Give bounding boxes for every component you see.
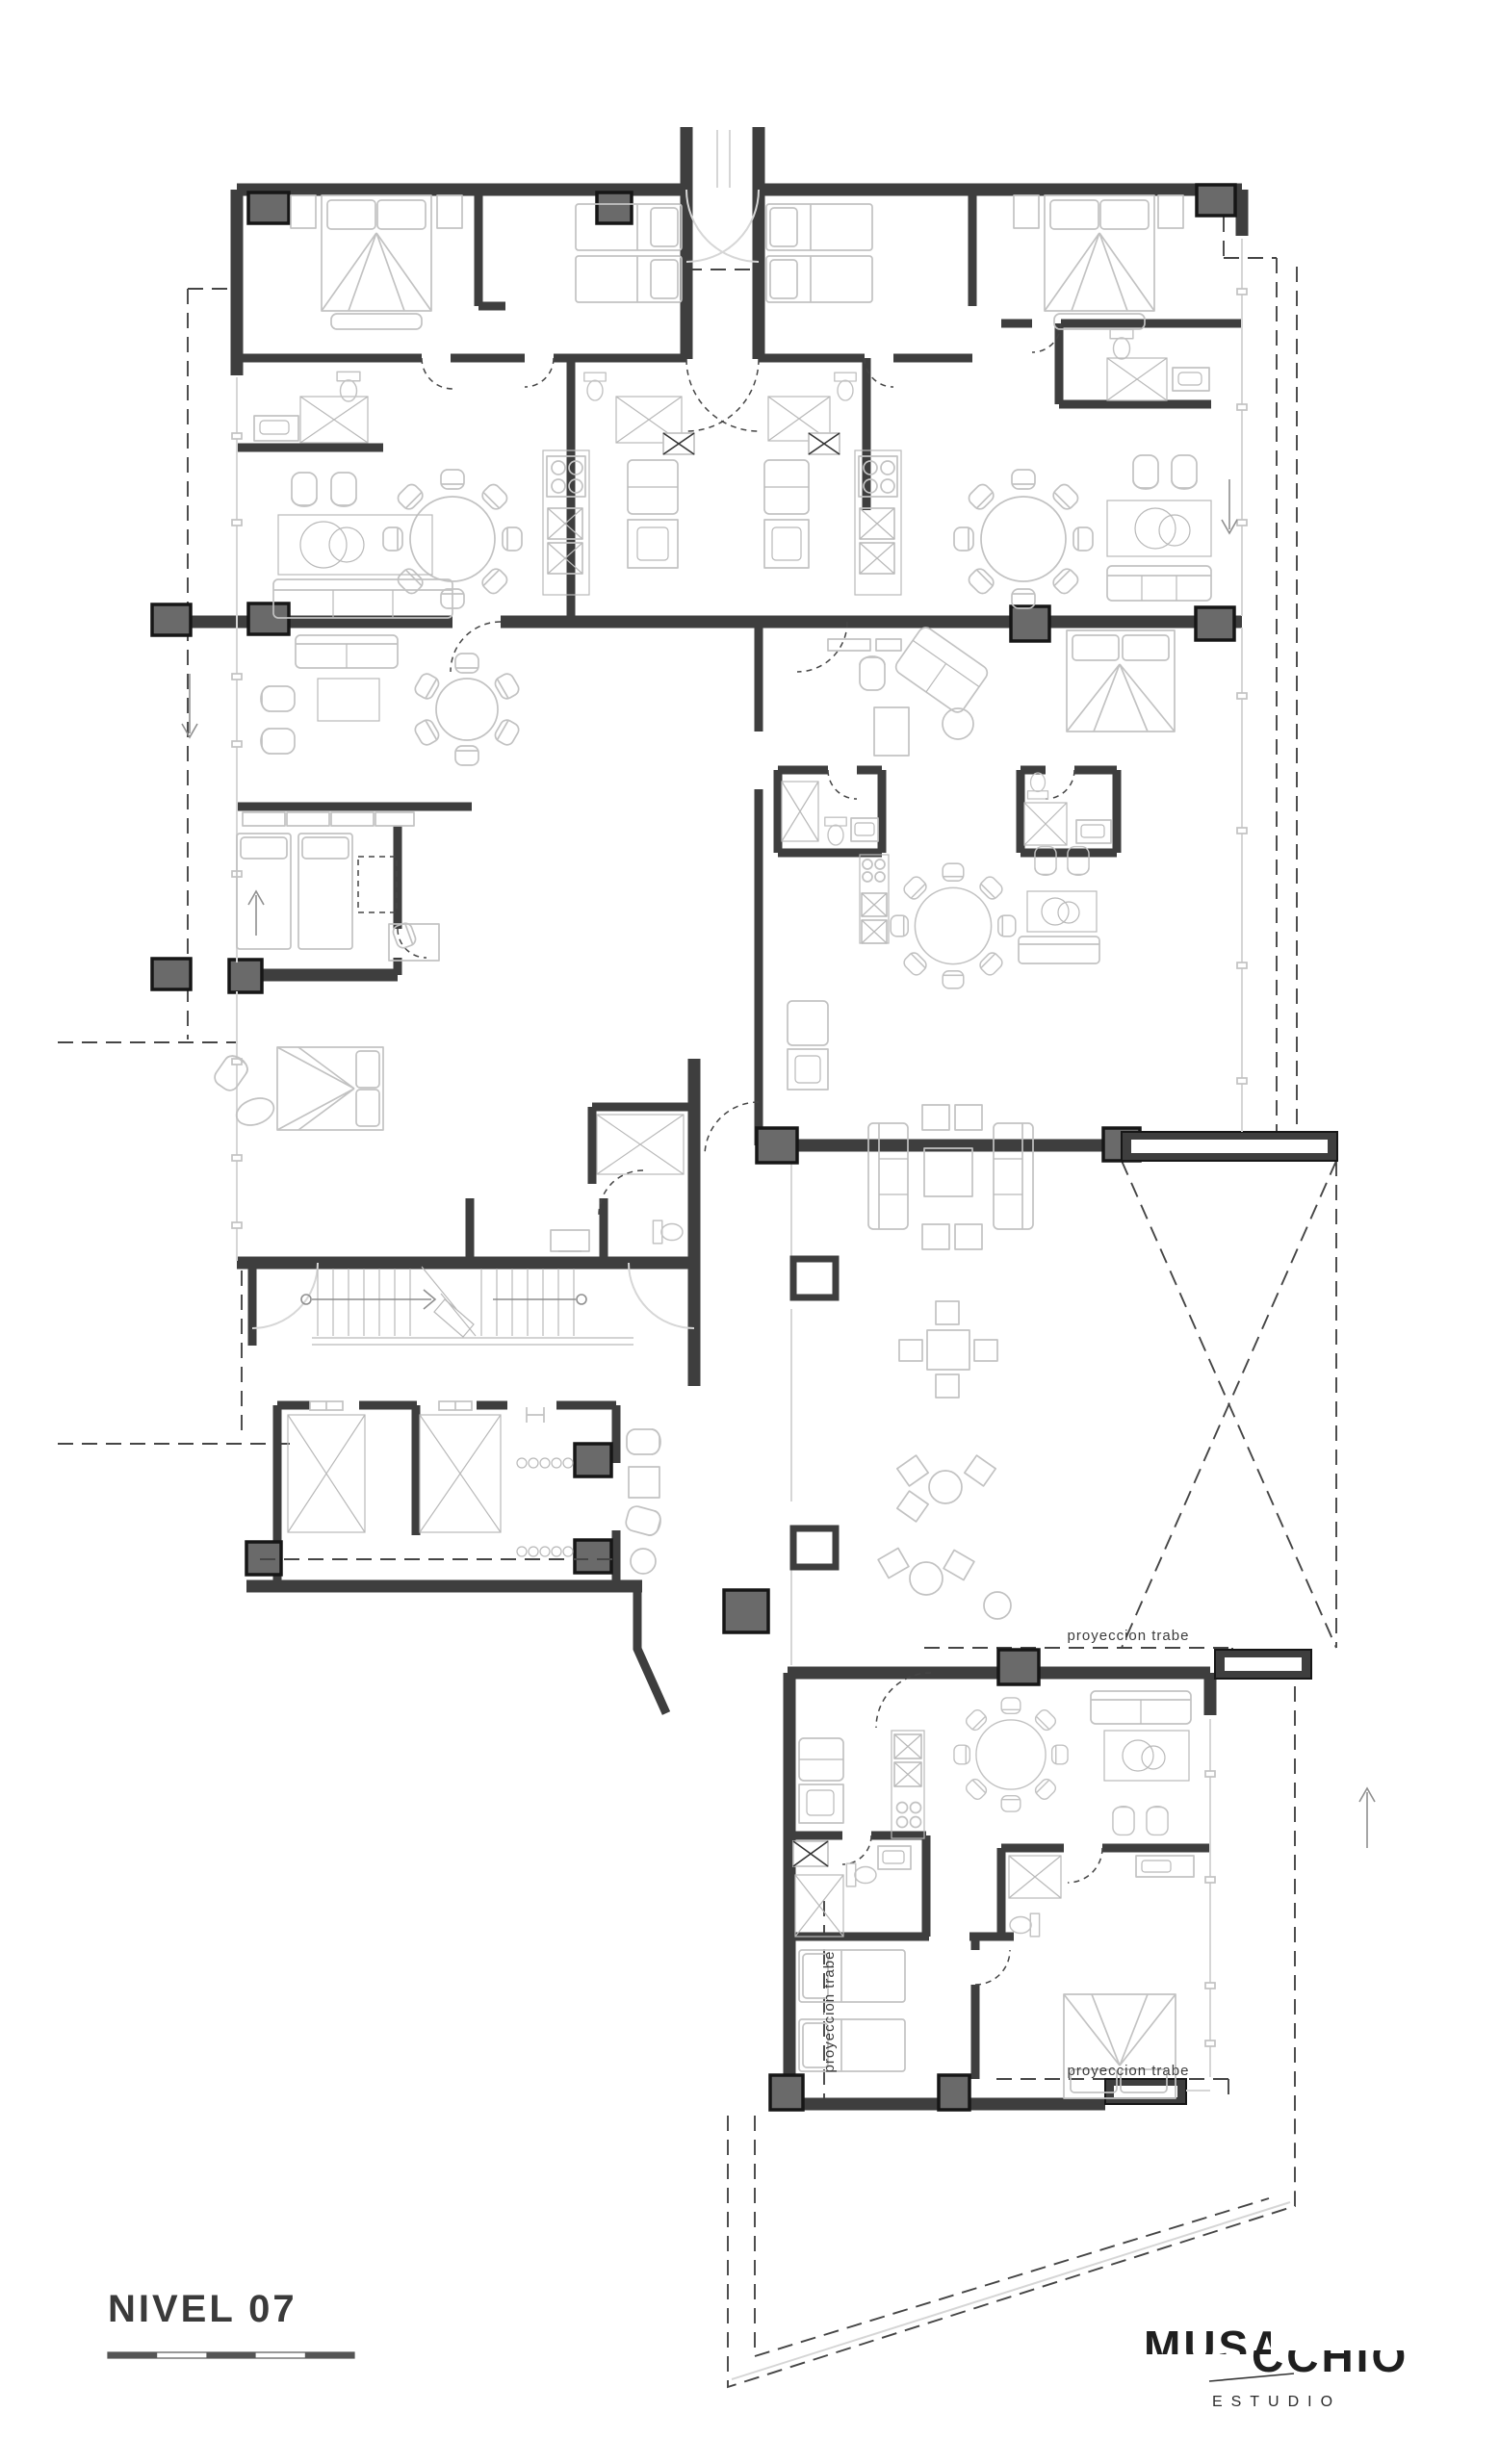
window-frame-piece-mid	[1122, 1132, 1337, 1161]
level-title: NIVEL 07	[108, 2288, 297, 2330]
sheet: proyeccion trabe proyeccion trabe proyec…	[0, 0, 1499, 2464]
scale-bar	[108, 2352, 354, 2358]
annotation-beam-projection-2: proyeccion trabe	[821, 1951, 838, 2073]
floor-plan-canvas: proyeccion trabe proyeccion trabe proyec…	[0, 0, 1499, 2464]
window-frame-piece-bottom-right-top	[1215, 1650, 1311, 1679]
paper-background	[0, 0, 1499, 2464]
annotation-beam-projection-3: proyeccion trabe	[1068, 2063, 1190, 2079]
annotation-beam-projection-1: proyeccion trabe	[1068, 1628, 1190, 1644]
logo-subtitle: ESTUDIO	[1212, 2394, 1341, 2410]
